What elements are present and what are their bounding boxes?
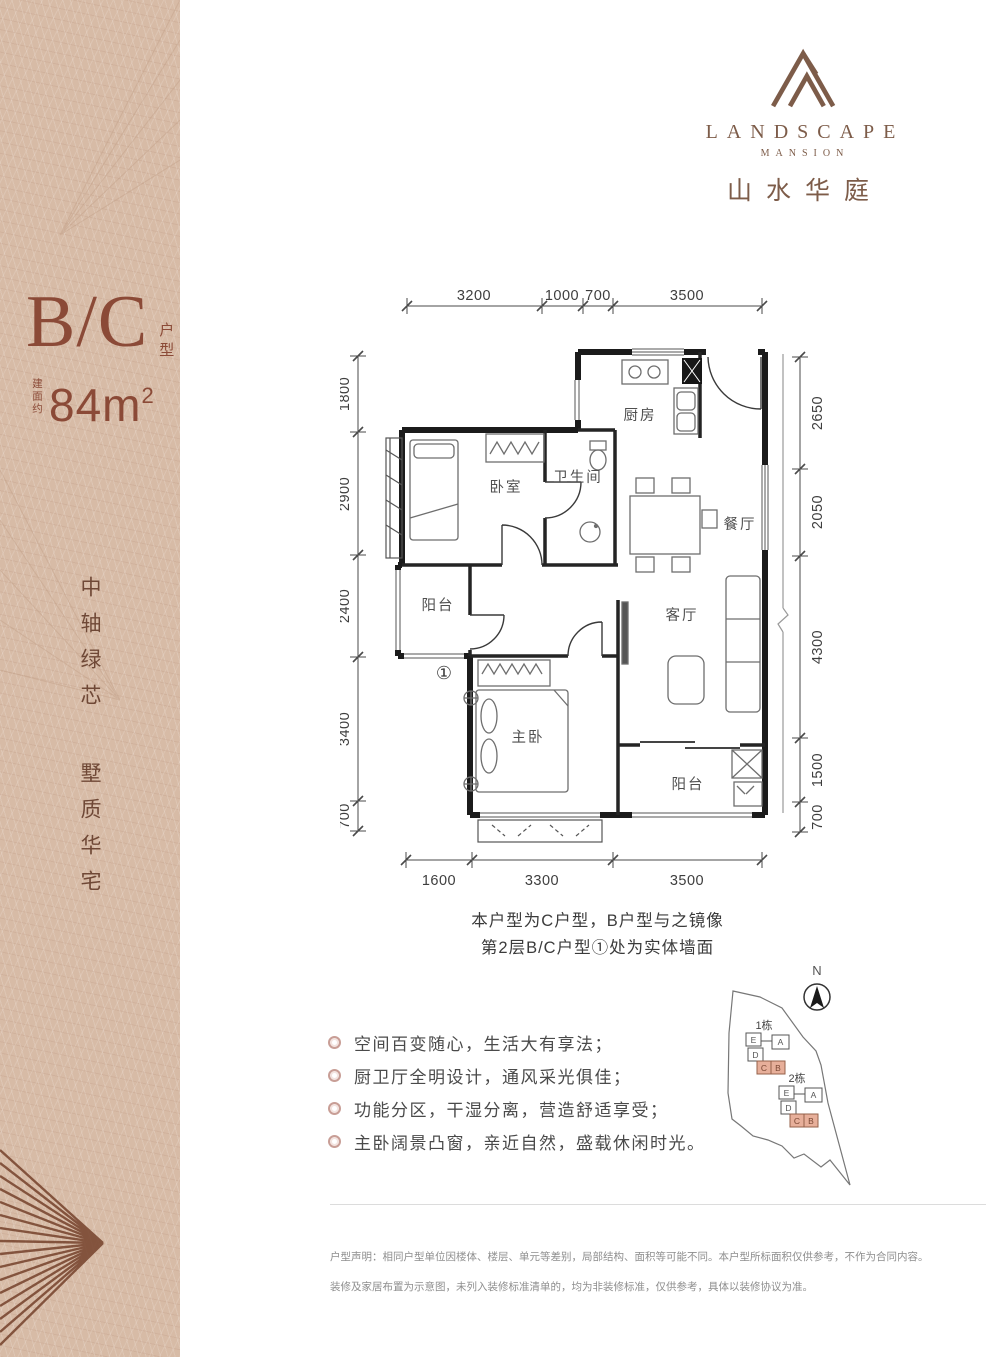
unit-letter: A	[778, 1037, 784, 1047]
outer-walls	[398, 352, 765, 815]
dim-right-3: 4300	[810, 630, 826, 664]
compass-icon	[804, 984, 830, 1010]
room-master: 主卧	[512, 729, 545, 746]
disclaimer-line-1: 户型声明：相同户型单位因楼体、楼层、单元等差别，局部结构、面积等可能不同。本户型…	[330, 1242, 995, 1272]
north-label: N	[812, 963, 821, 978]
feature-item: 空间百变随心，生活大有享法；	[328, 1026, 706, 1059]
dimension-labels: 3200 1000 700 3500 1800 2900 2400 3400 7…	[340, 288, 826, 889]
dim-top-3: 700	[585, 288, 611, 304]
divider-line	[330, 1204, 986, 1205]
site-map: N 1栋 E D A C B 2栋 E	[700, 953, 985, 1228]
dim-top-1: 3200	[457, 288, 491, 304]
unit-letter: E	[784, 1088, 790, 1098]
dim-bottom-1: 1600	[422, 873, 456, 889]
unit-letter: C	[761, 1063, 767, 1073]
unit-letter: C	[794, 1116, 800, 1126]
unit-code: B/C	[26, 282, 148, 362]
slogan-line-2: 墅质华宅	[74, 762, 104, 906]
dim-right-4: 1500	[810, 753, 826, 787]
area-prefix-label: 建面约	[30, 378, 45, 416]
building-cluster-2: 2栋 E D A C B	[779, 1071, 822, 1127]
area-exponent: 2	[141, 383, 154, 408]
flower-bullet-icon	[328, 1102, 341, 1115]
dim-bottom-2: 3300	[525, 873, 559, 889]
unit-code-block: B/C 户型	[26, 282, 176, 362]
building-1-label: 1栋	[755, 1018, 772, 1032]
brand-name: LANDSCAPE	[655, 121, 955, 144]
unit-letter: A	[811, 1090, 817, 1100]
unit-type-label: 户型	[155, 322, 176, 362]
area-value: 84m2	[49, 372, 155, 429]
feature-text: 功能分区，干湿分离，营造舒适享受；	[354, 1096, 669, 1121]
unit-letter: D	[752, 1050, 758, 1060]
room-bathroom: 卫生间	[553, 469, 603, 486]
floorplan-drawing: 3200 1000 700 3500 1800 2900 2400 3400 7…	[340, 270, 900, 980]
room-bedroom: 卧室	[490, 479, 523, 496]
flower-bullet-icon	[328, 1135, 341, 1148]
unit-letter: B	[775, 1063, 781, 1073]
bay-window-bottom	[478, 820, 602, 842]
adjacent-unit-edge	[778, 354, 788, 813]
note-line-1: 本户型为C户型，B户型与之镜像	[385, 908, 810, 935]
brand-subtitle: MANSION	[655, 148, 955, 159]
dim-right-1: 2650	[810, 396, 826, 430]
flower-bullet-icon	[328, 1069, 341, 1082]
feature-text: 厨卫厅全明设计，通风采光俱佳；	[354, 1063, 632, 1088]
feature-item: 厨卫厅全明设计，通风采光俱佳；	[328, 1059, 706, 1092]
unit-letter: D	[785, 1103, 791, 1113]
dim-right-5: 700	[810, 804, 826, 830]
brand-logo: LANDSCAPE MANSION 山水华庭	[655, 46, 955, 207]
dim-top-2: 1000	[545, 288, 579, 304]
feature-item: 主卧阔景凸窗，亲近自然，盛载休闲时光。	[328, 1125, 706, 1158]
mountain-icon	[755, 46, 855, 108]
shaft	[682, 358, 702, 384]
unit-letter: B	[808, 1116, 814, 1126]
dim-top-4: 3500	[670, 288, 704, 304]
interior-walls	[402, 352, 765, 815]
room-kitchen: 厨房	[624, 407, 657, 424]
furniture	[410, 360, 762, 806]
slogan-line-1: 中轴绿芯	[74, 576, 104, 720]
building-cluster-1: 1栋 E D A C B	[746, 1018, 789, 1074]
building-2-label: 2栋	[788, 1071, 805, 1085]
room-balcony-bottom: 阳台	[672, 776, 705, 793]
feature-item: 功能分区，干湿分离，营造舒适享受；	[328, 1092, 706, 1125]
unit-area-block: 建面约 84m2	[30, 372, 155, 429]
dim-bottom-3: 3500	[670, 873, 704, 889]
disclaimer-line-2: 装修及家居布置为示意图，未列入装修标准清单的，均为非装修标准，仅供参考，具体以装…	[330, 1272, 995, 1302]
disclaimer: 户型声明：相同户型单位因楼体、楼层、单元等差别，局部结构、面积等可能不同。本户型…	[330, 1242, 995, 1302]
room-dining: 餐厅	[724, 516, 757, 533]
dim-left-4: 3400	[340, 712, 353, 746]
flower-bullet-icon	[328, 1036, 341, 1049]
dim-right-2: 2050	[810, 495, 826, 529]
sidebar: B/C 户型 建面约 84m2 中轴绿芯 墅质华宅	[0, 0, 180, 1357]
feature-text: 主卧阔景凸窗，亲近自然，盛载休闲时光。	[354, 1129, 706, 1154]
dim-left-5: 700	[340, 803, 353, 829]
room-balcony-top: 阳台	[422, 597, 455, 614]
brand-chinese-name: 山水华庭	[655, 171, 955, 207]
wall-marker: ①	[436, 663, 452, 683]
feature-list: 空间百变随心，生活大有享法； 厨卫厅全明设计，通风采光俱佳； 功能分区，干湿分离…	[328, 1026, 706, 1158]
sliding-door	[640, 742, 740, 748]
feature-text: 空间百变随心，生活大有享法；	[354, 1030, 613, 1055]
brochure-page: B/C 户型 建面约 84m2 中轴绿芯 墅质华宅 LANDSCAPE MANS…	[0, 0, 1000, 1357]
dim-left-1: 1800	[340, 377, 353, 411]
dim-left-3: 2400	[340, 589, 353, 623]
unit-letter: E	[751, 1035, 757, 1045]
slogan-vertical-text: 中轴绿芯 墅质华宅	[74, 576, 104, 906]
dim-left-2: 2900	[340, 477, 353, 511]
room-living: 客厅	[666, 607, 699, 624]
